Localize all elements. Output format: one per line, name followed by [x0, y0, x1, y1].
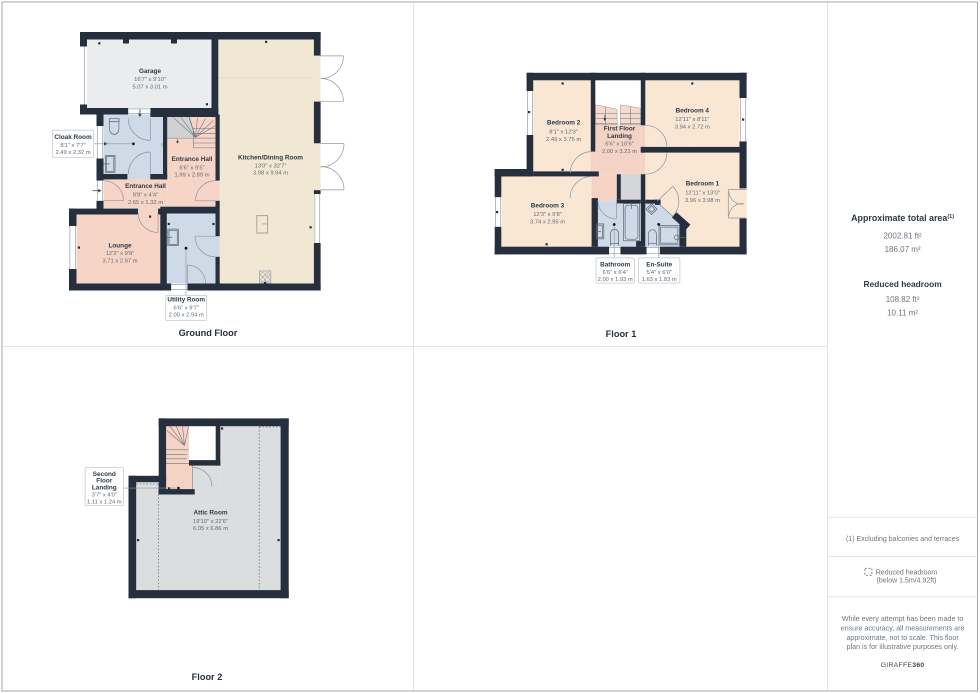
svg-text:6'6" x 9'7": 6'6" x 9'7"	[174, 305, 199, 311]
svg-text:12'3" x 9'8": 12'3" x 9'8"	[533, 212, 562, 218]
svg-text:2.00 x 1.93 m: 2.00 x 1.93 m	[598, 277, 633, 283]
svg-text:3.74 x 2.95 m: 3.74 x 2.95 m	[530, 220, 565, 226]
svg-text:3.71 x 2.97 m: 3.71 x 2.97 m	[102, 259, 137, 265]
svg-text:Ground Floor: Ground Floor	[179, 328, 238, 338]
svg-text:5'4" x 6'0": 5'4" x 6'0"	[647, 270, 672, 276]
svg-text:2002.81 ft²: 2002.81 ft²	[883, 231, 922, 240]
svg-text:Reduced headroom: Reduced headroom	[876, 570, 938, 577]
svg-text:(1) Excluding balconies and te: (1) Excluding balconies and terraces	[846, 536, 960, 543]
svg-text:Bathroom: Bathroom	[600, 262, 630, 269]
svg-text:3.98 x 9.94 m: 3.98 x 9.94 m	[253, 171, 288, 177]
svg-text:(below 1.5m/4.92ft): (below 1.5m/4.92ft)	[877, 578, 937, 585]
svg-text:Garage: Garage	[139, 68, 161, 75]
svg-text:Entrance Hall: Entrance Hall	[172, 156, 213, 163]
svg-text:3.94 x 2.72 m: 3.94 x 2.72 m	[675, 125, 710, 131]
svg-text:GIRAFFE360: GIRAFFE360	[881, 662, 925, 669]
svg-text:ensure accuracy, all measureme: ensure accuracy, all measurements are	[841, 624, 965, 632]
svg-text:19'10" x 22'6": 19'10" x 22'6"	[193, 519, 228, 525]
svg-text:5.07 x 3.01 m: 5.07 x 3.01 m	[132, 85, 167, 91]
svg-text:8'1" x 7'7": 8'1" x 7'7"	[60, 143, 85, 149]
svg-text:Landing: Landing	[92, 484, 117, 491]
svg-text:6.05 x 6.86 m: 6.05 x 6.86 m	[193, 526, 228, 532]
svg-text:Entrance Hall: Entrance Hall	[125, 183, 166, 190]
svg-text:Attic Room: Attic Room	[193, 510, 227, 517]
svg-text:plan is for illustrative purpo: plan is for illustrative purposes only.	[847, 643, 959, 651]
svg-text:Approximate total area(1): Approximate total area(1)	[851, 213, 954, 223]
svg-text:Bedroom 3: Bedroom 3	[531, 202, 565, 209]
svg-text:13'0" x 32'7": 13'0" x 32'7"	[255, 163, 287, 169]
svg-text:12'11" x 13'0": 12'11" x 13'0"	[685, 191, 720, 197]
svg-text:First Floor: First Floor	[604, 126, 636, 133]
svg-text:3'7" x 4'0": 3'7" x 4'0"	[92, 493, 117, 499]
svg-text:108.82 ft²: 108.82 ft²	[886, 295, 920, 304]
svg-text:8'1" x 12'3": 8'1" x 12'3"	[549, 130, 578, 136]
svg-text:While every attempt has been m: While every attempt has been made to	[842, 615, 964, 623]
svg-text:Landing: Landing	[607, 133, 632, 140]
svg-text:12'2" x 9'8": 12'2" x 9'8"	[106, 251, 135, 257]
svg-text:186.07 m²: 186.07 m²	[885, 245, 921, 254]
svg-text:1.99 x 2.89 m: 1.99 x 2.89 m	[174, 173, 209, 179]
svg-text:approximate, not to scale. Thi: approximate, not to scale. This floor	[846, 634, 959, 642]
svg-text:Lounge: Lounge	[108, 242, 132, 249]
svg-text:Kitchen/Dining Room: Kitchen/Dining Room	[238, 154, 303, 161]
svg-text:Bedroom 4: Bedroom 4	[676, 107, 710, 114]
svg-text:8'8" x 4'4": 8'8" x 4'4"	[133, 193, 158, 199]
svg-text:2.00 x 2.94 m: 2.00 x 2.94 m	[169, 312, 204, 318]
svg-text:6'6" x 6'4": 6'6" x 6'4"	[603, 270, 628, 276]
svg-text:12'11" x 8'11": 12'11" x 8'11"	[675, 117, 709, 123]
svg-text:6'6" x 10'6": 6'6" x 10'6"	[605, 142, 634, 148]
svg-text:1.11 x 1.24 m: 1.11 x 1.24 m	[87, 499, 122, 505]
svg-text:6'6" x 9'5": 6'6" x 9'5"	[179, 165, 204, 171]
svg-text:2.65 x 1.32 m: 2.65 x 1.32 m	[128, 200, 163, 206]
svg-text:Bedroom 2: Bedroom 2	[547, 120, 581, 127]
svg-text:Floor 1: Floor 1	[606, 329, 637, 339]
svg-text:En-Suite: En-Suite	[646, 262, 672, 269]
svg-text:2.00 x 3.21 m: 2.00 x 3.21 m	[602, 149, 637, 155]
svg-text:Reduced headroom: Reduced headroom	[864, 279, 942, 289]
svg-text:3.96 x 3.98 m: 3.96 x 3.98 m	[685, 198, 720, 204]
svg-text:16'7" x 9'10": 16'7" x 9'10"	[134, 77, 166, 83]
svg-text:Utility Room: Utility Room	[167, 297, 205, 304]
svg-text:1.63 x 1.83 m: 1.63 x 1.83 m	[642, 277, 677, 283]
svg-text:2.49 x 2.32 m: 2.49 x 2.32 m	[55, 150, 90, 156]
svg-text:Bedroom 1: Bedroom 1	[686, 181, 720, 188]
svg-text:10.11 m²: 10.11 m²	[887, 309, 918, 318]
svg-text:Cloak Room: Cloak Room	[54, 134, 92, 141]
svg-text:Floor 2: Floor 2	[192, 672, 223, 682]
svg-text:2.49 x 3.75 m: 2.49 x 3.75 m	[546, 137, 581, 143]
